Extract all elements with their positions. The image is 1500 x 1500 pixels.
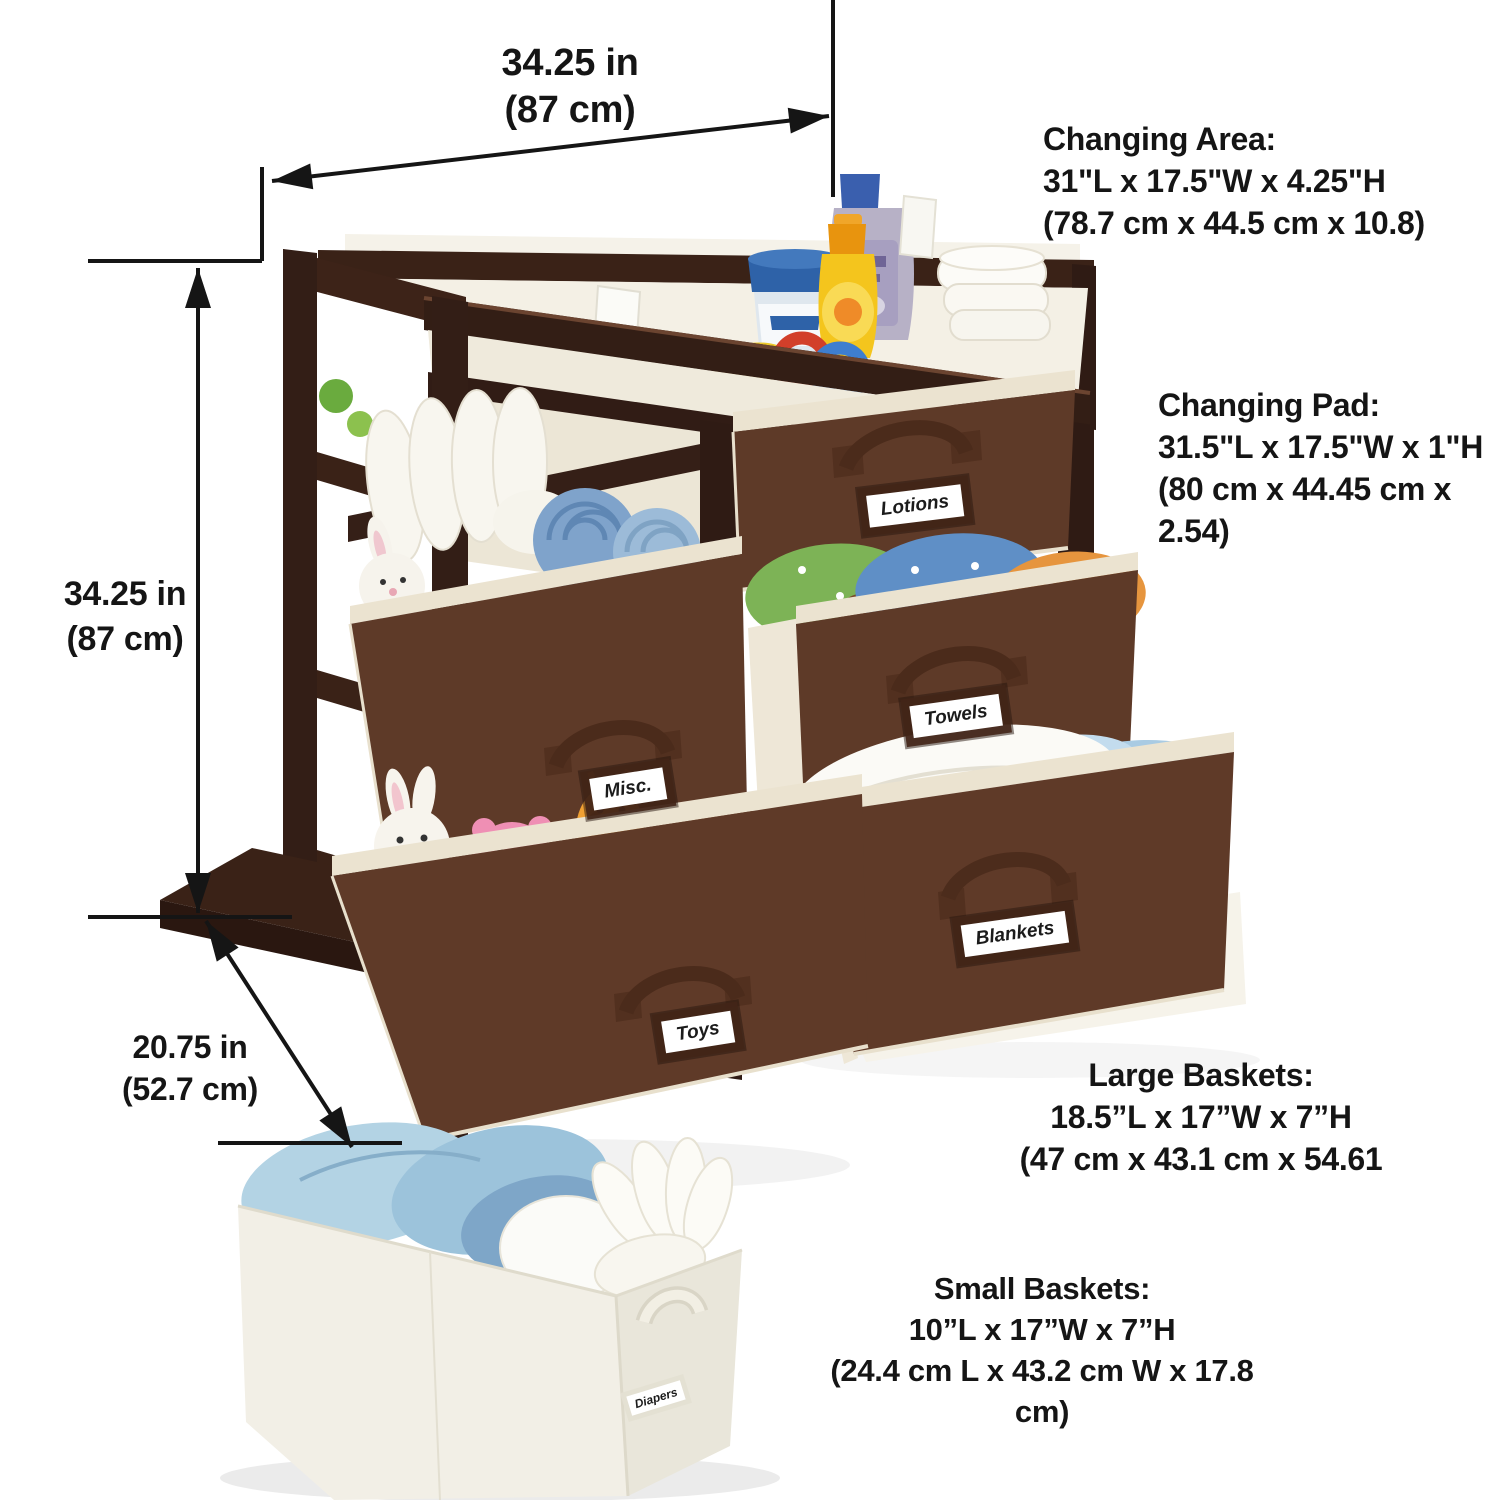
spec-imperial: 10”L x 17”W x 7”H: [822, 1309, 1262, 1350]
small-baskets-spec: Small Baskets: 10”L x 17”W x 7”H (24.4 c…: [822, 1268, 1262, 1432]
changing-area-spec: Changing Area: 31"L x 17.5"W x 4.25"H (7…: [1043, 118, 1483, 244]
spec-imperial: 18.5”L x 17”W x 7”H: [1001, 1096, 1401, 1138]
spec-metric: (47 cm x 43.1 cm x 54.61: [1001, 1138, 1401, 1180]
dimension-metric: (87 cm): [420, 87, 720, 134]
changing-pad-spec: Changing Pad: 31.5"L x 17.5"W x 1"H (80 …: [1158, 384, 1498, 552]
diapers-basket: [231, 1105, 742, 1500]
toys-basket: [332, 765, 868, 1140]
spec-metric: (24.4 cm L x 43.2 cm W x 17.8 cm): [822, 1350, 1262, 1432]
diaper-stack: [938, 246, 1050, 340]
spec-imperial: 31.5"L x 17.5"W x 1"H: [1158, 426, 1498, 468]
strap-end: [900, 196, 936, 258]
dimension-value: 34.25 in: [420, 40, 720, 87]
depth-dimension-label: 20.75 in (52.7 cm): [70, 1026, 310, 1110]
dimension-metric: (52.7 cm): [70, 1068, 310, 1110]
large-baskets-spec: Large Baskets: 18.5”L x 17”W x 7”H (47 c…: [1001, 1054, 1401, 1180]
spec-title: Small Baskets:: [822, 1268, 1262, 1309]
height-dimension-label: 34.25 in (87 cm): [0, 572, 250, 662]
spec-metric: (80 cm x 44.45 cm x 2.54): [1158, 468, 1498, 552]
dimension-value: 20.75 in: [70, 1026, 310, 1068]
spec-metric: (78.7 cm x 44.5 cm x 10.8): [1043, 202, 1483, 244]
dimension-value: 34.25 in: [0, 572, 250, 617]
product-dimension-image: 34.25 in (87 cm) 34.25 in (87 cm) 20.75 …: [0, 0, 1500, 1500]
spec-title: Changing Area:: [1043, 118, 1483, 160]
spec-imperial: 31"L x 17.5"W x 4.25"H: [1043, 160, 1483, 202]
spec-title: Changing Pad:: [1158, 384, 1498, 426]
spec-title: Large Baskets:: [1001, 1054, 1401, 1096]
width-dimension-label: 34.25 in (87 cm): [420, 40, 720, 134]
dimension-metric: (87 cm): [0, 617, 250, 662]
